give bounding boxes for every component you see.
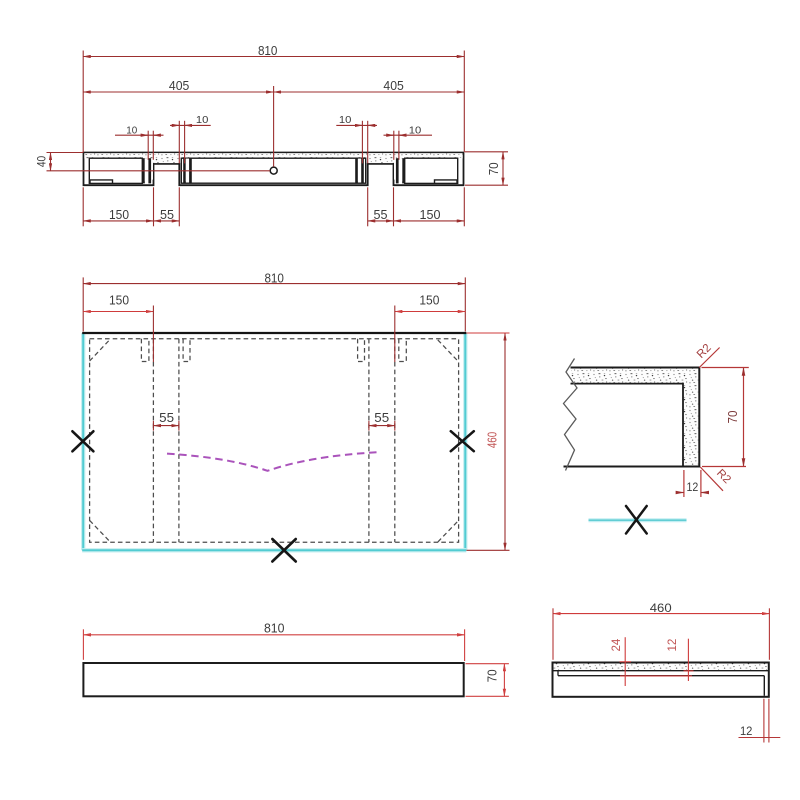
svg-text:150: 150: [109, 208, 129, 222]
svg-text:55: 55: [160, 208, 174, 222]
svg-text:12: 12: [740, 724, 753, 738]
svg-text:70: 70: [485, 669, 499, 682]
svg-text:810: 810: [264, 271, 284, 285]
svg-text:460: 460: [650, 601, 672, 615]
svg-text:150: 150: [419, 293, 439, 307]
svg-text:12: 12: [665, 638, 679, 651]
svg-text:460: 460: [486, 432, 500, 448]
svg-text:55: 55: [374, 411, 389, 425]
svg-text:24: 24: [609, 638, 623, 651]
svg-text:10: 10: [409, 126, 422, 137]
svg-text:55: 55: [159, 411, 174, 425]
svg-text:810: 810: [258, 44, 278, 58]
svg-text:810: 810: [264, 621, 285, 635]
svg-text:55: 55: [374, 208, 388, 222]
svg-text:70: 70: [726, 411, 740, 424]
svg-text:10: 10: [126, 126, 137, 137]
svg-text:10: 10: [196, 115, 209, 126]
svg-text:150: 150: [109, 293, 129, 307]
svg-text:405: 405: [169, 79, 189, 93]
svg-text:10: 10: [339, 115, 352, 126]
svg-text:150: 150: [420, 208, 441, 222]
svg-text:405: 405: [383, 79, 403, 93]
svg-text:12: 12: [687, 480, 699, 494]
svg-text:40: 40: [37, 156, 49, 167]
svg-text:70: 70: [487, 162, 501, 175]
